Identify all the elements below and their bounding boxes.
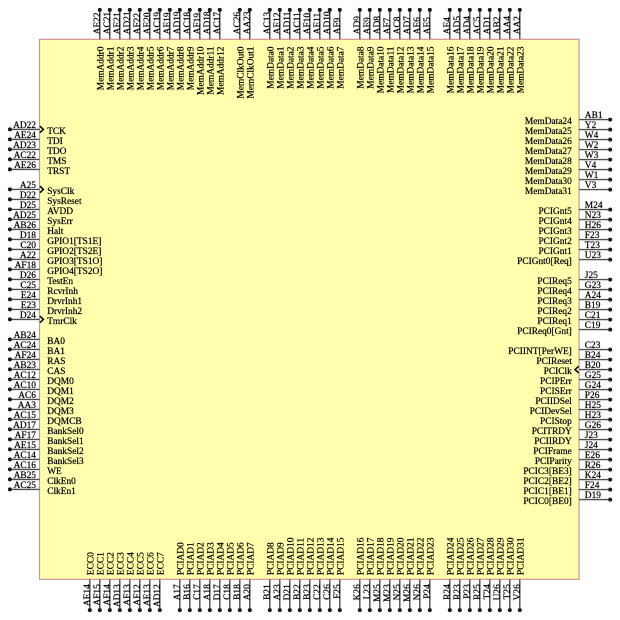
svg-text:AF10: AF10 xyxy=(303,13,313,35)
svg-text:C22: C22 xyxy=(313,584,323,600)
svg-text:MemData0: MemData0 xyxy=(267,46,277,88)
svg-text:N25: N25 xyxy=(393,584,403,600)
svg-text:BA1: BA1 xyxy=(47,347,65,357)
svg-text:PCIGnt2: PCIGnt2 xyxy=(538,237,572,247)
svg-text:PCIAD26: PCIAD26 xyxy=(467,537,477,575)
svg-text:K26: K26 xyxy=(353,584,363,600)
svg-text:H26: H26 xyxy=(585,221,601,231)
svg-text:DQM3: DQM3 xyxy=(47,407,74,417)
svg-text:PCIAD22: PCIAD22 xyxy=(417,537,427,575)
svg-text:E26: E26 xyxy=(585,451,600,461)
svg-text:AA4: AA4 xyxy=(503,16,513,35)
svg-text:PCIAD17: PCIAD17 xyxy=(367,537,377,575)
svg-text:M23: M23 xyxy=(383,584,393,602)
svg-text:PCIReq3: PCIReq3 xyxy=(537,297,572,307)
svg-text:AC15: AC15 xyxy=(14,411,37,421)
svg-text:MemData2: MemData2 xyxy=(287,46,297,88)
svg-text:D22: D22 xyxy=(20,191,36,201)
svg-text:G23: G23 xyxy=(585,281,601,291)
svg-text:AC18: AC18 xyxy=(183,12,193,35)
svg-text:W4: W4 xyxy=(585,131,599,141)
svg-text:PCIAD1: PCIAD1 xyxy=(187,542,197,575)
svg-text:MemData4: MemData4 xyxy=(307,46,317,88)
svg-text:D18: D18 xyxy=(20,231,36,241)
svg-text:AD21: AD21 xyxy=(123,11,133,34)
svg-text:AD1: AD1 xyxy=(483,16,493,35)
svg-text:MemAddr6: MemAddr6 xyxy=(157,46,167,90)
svg-text:AC10: AC10 xyxy=(14,381,37,391)
svg-text:V26: V26 xyxy=(513,584,523,600)
svg-text:PCIAD21: PCIAD21 xyxy=(407,537,417,575)
svg-text:AD25: AD25 xyxy=(13,211,36,221)
svg-text:AF9: AF9 xyxy=(333,17,343,34)
svg-text:AE12: AE12 xyxy=(273,12,283,34)
svg-text:PCIAD18: PCIAD18 xyxy=(377,537,387,575)
svg-text:PCIReq2: PCIReq2 xyxy=(537,307,572,317)
svg-text:AE5: AE5 xyxy=(423,17,433,34)
svg-text:MemData24: MemData24 xyxy=(525,117,572,127)
svg-text:MemData3: MemData3 xyxy=(297,46,307,88)
svg-text:DQM2: DQM2 xyxy=(47,397,74,407)
svg-text:AE19: AE19 xyxy=(163,12,173,34)
svg-text:C23: C23 xyxy=(585,341,601,351)
svg-text:PCIDevSel: PCIDevSel xyxy=(530,407,573,417)
svg-text:U23: U23 xyxy=(585,251,601,261)
svg-text:AD17: AD17 xyxy=(13,421,36,431)
svg-text:PCIAD20: PCIAD20 xyxy=(397,537,407,575)
svg-text:AD11: AD11 xyxy=(283,11,293,34)
svg-text:AF17: AF17 xyxy=(15,431,37,441)
svg-text:PCIC0[BE0]: PCIC0[BE0] xyxy=(523,497,571,507)
svg-text:AD4: AD4 xyxy=(463,16,473,35)
svg-text:MemData11: MemData11 xyxy=(387,46,397,93)
svg-text:A20: A20 xyxy=(243,584,253,600)
svg-text:BankSel2: BankSel2 xyxy=(47,447,84,457)
svg-text:F23: F23 xyxy=(585,231,600,241)
svg-text:D19: D19 xyxy=(585,491,601,501)
svg-text:PCIAD31: PCIAD31 xyxy=(517,537,527,575)
svg-text:MemAddr9: MemAddr9 xyxy=(187,46,197,90)
svg-text:AB23: AB23 xyxy=(14,361,37,371)
svg-text:ECC2: ECC2 xyxy=(107,552,117,575)
svg-text:AC11: AC11 xyxy=(293,12,303,34)
svg-text:AE14: AE14 xyxy=(83,584,93,606)
svg-text:AC13: AC13 xyxy=(263,12,273,35)
svg-text:MemData27: MemData27 xyxy=(525,147,572,157)
svg-text:AC21: AC21 xyxy=(103,12,113,35)
svg-text:E23: E23 xyxy=(21,301,36,311)
svg-text:BankSel3: BankSel3 xyxy=(47,457,84,467)
svg-text:A18: A18 xyxy=(203,584,213,600)
svg-text:PCIAD25: PCIAD25 xyxy=(457,537,467,575)
svg-text:GPIO2[TS2E]: GPIO2[TS2E] xyxy=(47,247,101,257)
svg-text:PCIAD5: PCIAD5 xyxy=(227,542,237,575)
svg-text:TCK: TCK xyxy=(47,127,66,137)
svg-text:PCIGnt1: PCIGnt1 xyxy=(538,247,572,257)
svg-text:K24: K24 xyxy=(585,471,601,481)
svg-text:PCIAD13: PCIAD13 xyxy=(317,537,327,575)
svg-text:AC24: AC24 xyxy=(14,341,37,351)
svg-text:C25: C25 xyxy=(20,281,36,291)
svg-text:AF7: AF7 xyxy=(383,17,393,34)
svg-text:AF19: AF19 xyxy=(193,13,203,35)
svg-text:MemData6: MemData6 xyxy=(327,46,337,88)
svg-text:D21: D21 xyxy=(283,584,293,600)
svg-text:ClkEn0: ClkEn0 xyxy=(47,477,76,487)
svg-text:E24: E24 xyxy=(21,291,36,301)
svg-text:PCIReq5: PCIReq5 xyxy=(537,277,572,287)
svg-text:F24: F24 xyxy=(585,481,600,491)
svg-text:R23: R23 xyxy=(453,584,463,600)
svg-text:BankSel1: BankSel1 xyxy=(47,437,84,447)
svg-text:PCIFrame: PCIFrame xyxy=(533,447,572,457)
svg-text:MemData8: MemData8 xyxy=(357,46,367,88)
svg-text:MemData18: MemData18 xyxy=(467,46,477,93)
svg-text:H23: H23 xyxy=(585,411,601,421)
svg-text:DQM0: DQM0 xyxy=(47,377,74,387)
svg-text:P26: P26 xyxy=(585,391,600,401)
svg-text:B23: B23 xyxy=(303,584,313,600)
svg-text:PCIReq0[Gnt]: PCIReq0[Gnt] xyxy=(517,327,572,337)
svg-text:MemData22: MemData22 xyxy=(507,46,517,93)
svg-text:T23: T23 xyxy=(585,241,600,251)
svg-text:AC14: AC14 xyxy=(14,451,37,461)
svg-text:PCIINT[PerWE]: PCIINT[PerWE] xyxy=(508,347,572,357)
svg-text:B24: B24 xyxy=(585,351,601,361)
svg-text:MemData29: MemData29 xyxy=(525,167,572,177)
svg-text:GPIO4[TS2O]: GPIO4[TS2O] xyxy=(47,267,102,277)
svg-text:AE4: AE4 xyxy=(443,17,453,34)
svg-text:D26: D26 xyxy=(20,271,36,281)
svg-text:MemData1: MemData1 xyxy=(277,46,287,88)
svg-text:AA23: AA23 xyxy=(243,11,253,34)
svg-text:DQMCB: DQMCB xyxy=(47,417,81,427)
svg-text:MemAddr5: MemAddr5 xyxy=(147,46,157,90)
svg-text:AA3: AA3 xyxy=(18,401,37,411)
svg-text:AE26: AE26 xyxy=(14,161,36,171)
svg-text:PCIAD9: PCIAD9 xyxy=(277,542,287,575)
svg-text:B18: B18 xyxy=(233,584,243,600)
svg-text:PCIAD16: PCIAD16 xyxy=(357,537,367,575)
svg-text:TDI: TDI xyxy=(47,137,63,147)
svg-text:AE9: AE9 xyxy=(363,17,373,34)
svg-text:C26: C26 xyxy=(323,584,333,600)
svg-text:AE6: AE6 xyxy=(413,17,423,34)
svg-text:Halt: Halt xyxy=(47,227,64,237)
svg-text:N23: N23 xyxy=(585,211,601,221)
svg-text:AD10: AD10 xyxy=(323,11,333,34)
svg-text:MemData30: MemData30 xyxy=(525,177,572,187)
svg-text:AB2: AB2 xyxy=(493,16,503,34)
svg-text:PCIAD28: PCIAD28 xyxy=(487,537,497,575)
svg-text:ECC5: ECC5 xyxy=(137,552,147,575)
svg-text:MemAddr1: MemAddr1 xyxy=(107,46,117,90)
svg-text:ECC4: ECC4 xyxy=(127,552,137,575)
svg-text:PCIAD10: PCIAD10 xyxy=(287,537,297,575)
svg-text:PCIC1[BE1]: PCIC1[BE1] xyxy=(523,487,571,497)
svg-text:G26: G26 xyxy=(585,421,601,431)
svg-text:SysReset: SysReset xyxy=(47,197,82,207)
svg-text:W2: W2 xyxy=(585,141,599,151)
svg-text:AA2: AA2 xyxy=(513,16,523,35)
svg-text:PCIGnt5: PCIGnt5 xyxy=(538,207,572,217)
svg-text:R24: R24 xyxy=(443,584,453,600)
svg-text:PCIAD7: PCIAD7 xyxy=(247,542,257,575)
svg-text:AD19: AD19 xyxy=(173,11,183,34)
svg-text:A23: A23 xyxy=(273,584,283,600)
svg-text:PCIAD29: PCIAD29 xyxy=(497,537,507,575)
svg-text:A24: A24 xyxy=(585,291,601,301)
svg-text:PCIPErr: PCIPErr xyxy=(540,377,573,387)
svg-text:MemAddr8: MemAddr8 xyxy=(177,46,187,90)
svg-text:AC5: AC5 xyxy=(473,16,483,34)
svg-text:AF15: AF15 xyxy=(93,584,103,606)
svg-text:MemAddr7: MemAddr7 xyxy=(167,46,177,90)
svg-text:AF14: AF14 xyxy=(103,584,113,606)
svg-text:D17: D17 xyxy=(213,584,223,600)
svg-text:PCIAD30: PCIAD30 xyxy=(507,537,517,575)
svg-text:PCIAD15: PCIAD15 xyxy=(337,537,347,575)
svg-text:R25: R25 xyxy=(473,584,483,600)
svg-text:MemData23: MemData23 xyxy=(517,46,527,93)
svg-text:C21: C21 xyxy=(585,311,601,321)
svg-text:PCIIRDY: PCIIRDY xyxy=(534,437,572,447)
svg-text:PCIGnt3: PCIGnt3 xyxy=(538,227,572,237)
svg-text:MemData19: MemData19 xyxy=(477,46,487,93)
svg-text:PCIAD2: PCIAD2 xyxy=(197,542,207,575)
svg-text:AD9: AD9 xyxy=(353,16,363,35)
svg-text:AF13: AF13 xyxy=(123,584,133,606)
svg-text:RcvrInh: RcvrInh xyxy=(47,287,78,297)
svg-text:AD22: AD22 xyxy=(13,121,36,131)
svg-text:A25: A25 xyxy=(20,181,36,191)
svg-text:AC19: AC19 xyxy=(153,12,163,35)
svg-text:P24: P24 xyxy=(423,584,433,599)
svg-text:C17: C17 xyxy=(193,584,203,600)
svg-text:AB24: AB24 xyxy=(14,331,37,341)
svg-text:MemData14: MemData14 xyxy=(417,46,427,93)
svg-text:PCIReq1: PCIReq1 xyxy=(537,317,572,327)
svg-text:PCIAD23: PCIAD23 xyxy=(427,537,437,575)
svg-text:AC22: AC22 xyxy=(14,151,37,161)
svg-text:MemClkOut0: MemClkOut0 xyxy=(237,46,247,98)
svg-text:MemData21: MemData21 xyxy=(497,46,507,93)
svg-text:R26: R26 xyxy=(585,461,601,471)
svg-text:MemData12: MemData12 xyxy=(397,46,407,93)
svg-text:AD18: AD18 xyxy=(203,11,213,34)
svg-text:G24: G24 xyxy=(585,381,601,391)
svg-text:MemData9: MemData9 xyxy=(367,46,377,88)
svg-text:PCIParity: PCIParity xyxy=(535,457,572,467)
svg-text:J25: J25 xyxy=(585,271,598,281)
svg-text:PCITRDY: PCITRDY xyxy=(532,427,572,437)
svg-text:PCIAD3: PCIAD3 xyxy=(207,542,217,575)
svg-text:MemData26: MemData26 xyxy=(525,137,572,147)
svg-text:GPIO3[TS1O]: GPIO3[TS1O] xyxy=(47,257,102,267)
svg-text:T24: T24 xyxy=(483,584,493,599)
svg-text:ECC6: ECC6 xyxy=(147,552,157,575)
svg-text:MemAddr2: MemAddr2 xyxy=(117,46,127,90)
svg-text:A22: A22 xyxy=(20,251,36,261)
svg-text:MemAddr10: MemAddr10 xyxy=(197,46,207,95)
svg-text:G25: G25 xyxy=(585,371,601,381)
svg-text:PCIAD27: PCIAD27 xyxy=(477,537,487,575)
svg-text:PCIAD11: PCIAD11 xyxy=(297,538,307,575)
svg-text:PCIStop: PCIStop xyxy=(540,417,572,427)
svg-text:MemData31: MemData31 xyxy=(525,187,572,197)
svg-text:TestEn: TestEn xyxy=(47,277,73,287)
svg-text:W3: W3 xyxy=(585,151,599,161)
svg-text:AE22: AE22 xyxy=(93,12,103,34)
svg-text:AD5: AD5 xyxy=(453,16,463,35)
svg-text:TmrClk: TmrClk xyxy=(47,317,77,327)
svg-text:BankSel0: BankSel0 xyxy=(47,427,84,437)
svg-text:AD23: AD23 xyxy=(13,141,36,151)
svg-text:D24: D24 xyxy=(20,311,36,321)
svg-text:N26: N26 xyxy=(413,584,423,600)
svg-text:PCIAD6: PCIAD6 xyxy=(237,542,247,575)
svg-text:MemAddr11: MemAddr11 xyxy=(207,46,217,94)
svg-text:PCIAD8: PCIAD8 xyxy=(267,542,277,575)
svg-text:MemData10: MemData10 xyxy=(377,46,387,93)
svg-text:TDO: TDO xyxy=(47,147,66,157)
svg-text:PCIC3[BE3]: PCIC3[BE3] xyxy=(523,467,571,477)
svg-text:AE13: AE13 xyxy=(143,584,153,606)
svg-text:AD13: AD13 xyxy=(113,584,123,607)
svg-text:PCIAD19: PCIAD19 xyxy=(387,537,397,575)
svg-text:B20: B20 xyxy=(585,361,601,371)
svg-text:PCIAD0: PCIAD0 xyxy=(177,542,187,575)
svg-text:F25: F25 xyxy=(333,584,343,599)
svg-text:C18: C18 xyxy=(223,584,233,600)
svg-text:AD12: AD12 xyxy=(153,584,163,607)
svg-text:PCIGnt0[Req]: PCIGnt0[Req] xyxy=(517,257,572,267)
svg-text:PCIReq4: PCIReq4 xyxy=(537,287,572,297)
svg-text:Y2: Y2 xyxy=(585,121,597,131)
svg-text:M24: M24 xyxy=(585,201,603,211)
svg-text:PCIGnt4: PCIGnt4 xyxy=(538,217,572,227)
svg-text:P23: P23 xyxy=(463,584,473,599)
svg-text:PCIIDSel: PCIIDSel xyxy=(535,397,572,407)
svg-text:AE24: AE24 xyxy=(14,131,36,141)
svg-text:AC25: AC25 xyxy=(14,481,37,491)
svg-text:PCIAD4: PCIAD4 xyxy=(217,542,227,575)
svg-text:MemData17: MemData17 xyxy=(457,46,467,93)
svg-text:B22: B22 xyxy=(293,584,303,600)
svg-text:TRST: TRST xyxy=(47,167,70,177)
svg-text:AF18: AF18 xyxy=(15,261,37,271)
svg-text:A17: A17 xyxy=(173,584,183,600)
svg-text:B21: B21 xyxy=(263,584,273,600)
svg-text:AB1: AB1 xyxy=(585,111,603,121)
svg-text:PCIReset: PCIReset xyxy=(536,357,572,367)
svg-text:MemData20: MemData20 xyxy=(487,46,497,93)
svg-text:B16: B16 xyxy=(183,584,193,600)
svg-text:AC8: AC8 xyxy=(393,16,403,34)
svg-text:MemData5: MemData5 xyxy=(317,46,327,88)
svg-text:MemData15: MemData15 xyxy=(427,46,437,93)
svg-text:ClkEn1: ClkEn1 xyxy=(47,487,76,497)
svg-text:AB26: AB26 xyxy=(14,221,37,231)
svg-text:AE20: AE20 xyxy=(143,12,153,34)
svg-text:C19: C19 xyxy=(585,321,601,331)
svg-text:W1: W1 xyxy=(585,171,599,181)
svg-text:GPIO1[TS1E]: GPIO1[TS1E] xyxy=(47,237,101,247)
svg-text:AE11: AE11 xyxy=(313,12,323,34)
svg-text:PCIClk: PCIClk xyxy=(544,367,572,377)
svg-text:MemClkOut1: MemClkOut1 xyxy=(247,46,257,98)
svg-text:MemData28: MemData28 xyxy=(525,157,572,167)
svg-text:CAS: CAS xyxy=(47,367,65,377)
svg-text:AC6: AC6 xyxy=(18,391,36,401)
svg-text:ECC1: ECC1 xyxy=(97,552,107,575)
svg-text:AD8: AD8 xyxy=(373,16,383,35)
svg-text:V4: V4 xyxy=(585,161,597,171)
svg-text:AF12: AF12 xyxy=(133,584,143,606)
svg-text:DQM1: DQM1 xyxy=(47,387,74,397)
svg-text:V3: V3 xyxy=(585,181,597,191)
svg-text:AC26: AC26 xyxy=(233,12,243,35)
svg-text:AE21: AE21 xyxy=(113,12,123,34)
svg-text:D25: D25 xyxy=(20,201,36,211)
svg-text:MemAddr3: MemAddr3 xyxy=(127,46,137,90)
svg-text:C20: C20 xyxy=(20,241,36,251)
svg-text:T25: T25 xyxy=(503,584,513,599)
svg-text:J24: J24 xyxy=(585,441,598,451)
svg-text:B19: B19 xyxy=(585,301,601,311)
svg-text:RAS: RAS xyxy=(47,357,65,367)
svg-text:PCIC2[BE2]: PCIC2[BE2] xyxy=(523,477,571,487)
svg-text:ECC0: ECC0 xyxy=(87,552,97,575)
svg-text:J23: J23 xyxy=(585,431,598,441)
svg-text:H25: H25 xyxy=(585,401,601,411)
svg-text:PCIAD14: PCIAD14 xyxy=(327,537,337,575)
svg-text:SysClk: SysClk xyxy=(47,187,74,197)
svg-text:AF22: AF22 xyxy=(133,13,143,35)
svg-text:AC16: AC16 xyxy=(14,461,37,471)
svg-text:ECC3: ECC3 xyxy=(117,552,127,575)
svg-text:MemAddr4: MemAddr4 xyxy=(137,46,147,90)
svg-text:U26: U26 xyxy=(493,584,503,600)
svg-text:WE: WE xyxy=(47,467,62,477)
svg-text:AD7: AD7 xyxy=(403,16,413,35)
svg-text:AE15: AE15 xyxy=(14,441,36,451)
svg-text:M25: M25 xyxy=(373,584,383,602)
svg-text:AF24: AF24 xyxy=(15,351,37,361)
svg-text:TMS: TMS xyxy=(47,157,66,167)
svg-text:MemAddr0: MemAddr0 xyxy=(97,46,107,90)
svg-text:MemData7: MemData7 xyxy=(337,46,347,88)
svg-text:ECC7: ECC7 xyxy=(157,552,167,575)
svg-text:MemData16: MemData16 xyxy=(447,46,457,93)
svg-text:AC12: AC12 xyxy=(14,371,37,381)
svg-text:PCISErr: PCISErr xyxy=(540,387,573,397)
svg-text:M26: M26 xyxy=(403,584,413,602)
svg-text:L23: L23 xyxy=(363,584,373,599)
svg-text:MemData13: MemData13 xyxy=(407,46,417,93)
svg-text:DrvrInh1: DrvrInh1 xyxy=(47,297,82,307)
svg-text:PCIAD12: PCIAD12 xyxy=(307,537,317,575)
svg-text:MemData25: MemData25 xyxy=(525,127,572,137)
svg-text:AB25: AB25 xyxy=(14,471,37,481)
svg-text:AVDD: AVDD xyxy=(47,207,73,217)
svg-text:SysErr: SysErr xyxy=(47,217,73,227)
svg-text:BA0: BA0 xyxy=(47,337,65,347)
svg-text:AC17: AC17 xyxy=(213,12,223,35)
svg-text:DrvrInh2: DrvrInh2 xyxy=(47,307,82,317)
svg-text:MemAddr12: MemAddr12 xyxy=(217,46,227,95)
svg-text:PCIAD24: PCIAD24 xyxy=(447,537,457,575)
